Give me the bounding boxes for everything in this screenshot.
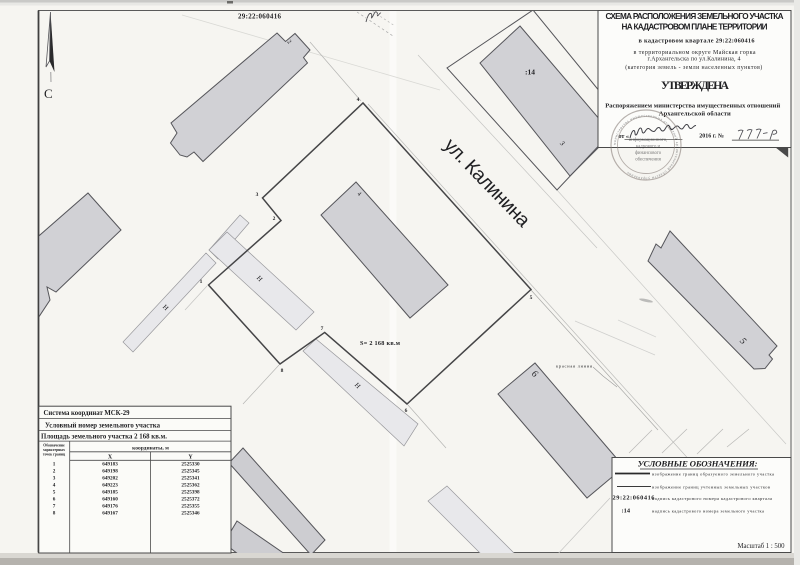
svg-text:Условный номер земельного учас: Условный номер земельного участка xyxy=(45,423,161,430)
svg-text:обеспечения: обеспечения xyxy=(635,158,661,163)
svg-text:НА КАДАСТРОВОМ ПЛАНЕ ТЕРРИТОРИ: НА КАДАСТРОВОМ ПЛАНЕ ТЕРРИТОРИИ xyxy=(622,23,768,32)
svg-text:Площадь земельного участка 2 1: Площадь земельного участка 2 168 кв.м. xyxy=(41,434,167,441)
svg-text:1: 1 xyxy=(200,279,203,285)
svg-text:X: X xyxy=(108,455,113,461)
svg-text:649185: 649185 xyxy=(102,490,118,496)
svg-text:2525355: 2525355 xyxy=(181,504,200,510)
svg-text:2525341: 2525341 xyxy=(181,476,200,482)
svg-text:4: 4 xyxy=(53,483,56,489)
svg-text:1: 1 xyxy=(53,462,56,468)
svg-text:2525372: 2525372 xyxy=(181,497,200,503)
svg-text:Y: Y xyxy=(188,455,193,461)
svg-text:характерных: характерных xyxy=(43,448,65,452)
svg-text:649176: 649176 xyxy=(102,504,118,510)
svg-text:от «: от « xyxy=(619,134,629,140)
svg-text:координаты, м: координаты, м xyxy=(132,446,169,452)
svg-text:2525362: 2525362 xyxy=(181,483,200,489)
svg-text:5: 5 xyxy=(530,295,533,301)
svg-text:УСЛОВНЫЕ ОБОЗНАЧЕНИЯ:: УСЛОВНЫЕ ОБОЗНАЧЕНИЯ: xyxy=(638,459,758,469)
svg-text:7: 7 xyxy=(53,504,56,510)
svg-text:8: 8 xyxy=(53,511,56,517)
svg-text:3: 3 xyxy=(256,192,259,198)
svg-text:4: 4 xyxy=(357,97,360,103)
svg-text:Архангельской области: Архангельской области xyxy=(659,111,731,118)
svg-text:8: 8 xyxy=(281,368,284,374)
svg-text:г.Архангельска по ул.Калинина,: г.Архангельска по ул.Калинина, 4 xyxy=(648,57,741,63)
svg-text:2525345: 2525345 xyxy=(181,469,200,475)
svg-text:УТВЕРЖДЕНА: УТВЕРЖДЕНА xyxy=(661,79,730,92)
svg-text:надпись кадастрового номера ка: надпись кадастрового номера кадастрового… xyxy=(652,496,772,501)
svg-text:2525398: 2525398 xyxy=(181,490,200,496)
svg-text:S= 2 168 кв.м: S= 2 168 кв.м xyxy=(360,340,401,347)
svg-text:2525346: 2525346 xyxy=(181,511,200,517)
svg-text:изображение границ образуемого: изображение границ образуемого земельног… xyxy=(652,472,774,477)
svg-text:Система координат МСК-29: Система координат МСК-29 xyxy=(44,410,131,417)
svg-text:Распоряжением министерства иму: Распоряжением министерства имущественных… xyxy=(605,102,780,109)
svg-text:29:22:060416: 29:22:060416 xyxy=(613,495,656,502)
svg-text:2525330: 2525330 xyxy=(181,462,200,468)
svg-text:3: 3 xyxy=(53,476,56,482)
svg-text:649198: 649198 xyxy=(102,469,118,475)
svg-text:С: С xyxy=(44,86,53,101)
svg-text:649167: 649167 xyxy=(102,511,118,517)
svg-text:649160: 649160 xyxy=(102,497,118,503)
svg-text:5: 5 xyxy=(53,490,56,496)
svg-text:649183: 649183 xyxy=(102,462,118,468)
svg-text:Масштаб 1 : 500: Масштаб 1 : 500 xyxy=(738,543,786,550)
svg-text:в кадастровом квартале 29:22:0: в кадастровом квартале 29:22:060416 xyxy=(639,38,755,45)
svg-text:649202: 649202 xyxy=(102,476,118,482)
svg-text:29:22:060416: 29:22:060416 xyxy=(238,13,282,21)
svg-text:информационного,: информационного, xyxy=(629,138,668,143)
svg-text::14: :14 xyxy=(622,508,631,515)
svg-text:(категория земель - земли насе: (категория земель - земли населенных пун… xyxy=(625,64,762,71)
svg-text:красная линия: красная линия xyxy=(556,364,592,369)
svg-text:изображение границ учтенных зе: изображение границ учтенных земельных уч… xyxy=(652,485,770,490)
svg-text:7: 7 xyxy=(321,326,324,332)
svg-text:6: 6 xyxy=(53,497,56,503)
svg-text:финансового: финансового xyxy=(635,151,662,156)
svg-text::14: :14 xyxy=(525,68,535,77)
svg-text:Обозначение: Обозначение xyxy=(43,444,65,448)
svg-text:2016 г. №: 2016 г. № xyxy=(699,134,724,140)
svg-text:кадрового и: кадрового и xyxy=(636,145,661,150)
svg-text:в территориальном округе Майс: в территориальном округе Майская горка xyxy=(634,49,756,56)
svg-text:649223: 649223 xyxy=(102,483,118,489)
svg-text:надпись кадастрового номера зе: надпись кадастрового номера земельного у… xyxy=(652,509,764,514)
svg-text:2: 2 xyxy=(273,216,276,222)
svg-text:СХЕМА РАСПОЛОЖЕНИЯ ЗЕМЕЛЬНОГО: СХЕМА РАСПОЛОЖЕНИЯ ЗЕМЕЛЬНОГО УЧАСТКА xyxy=(606,12,784,21)
svg-text:2: 2 xyxy=(53,469,56,475)
svg-text:6: 6 xyxy=(405,408,408,414)
svg-text:точек границ: точек границ xyxy=(43,453,66,457)
